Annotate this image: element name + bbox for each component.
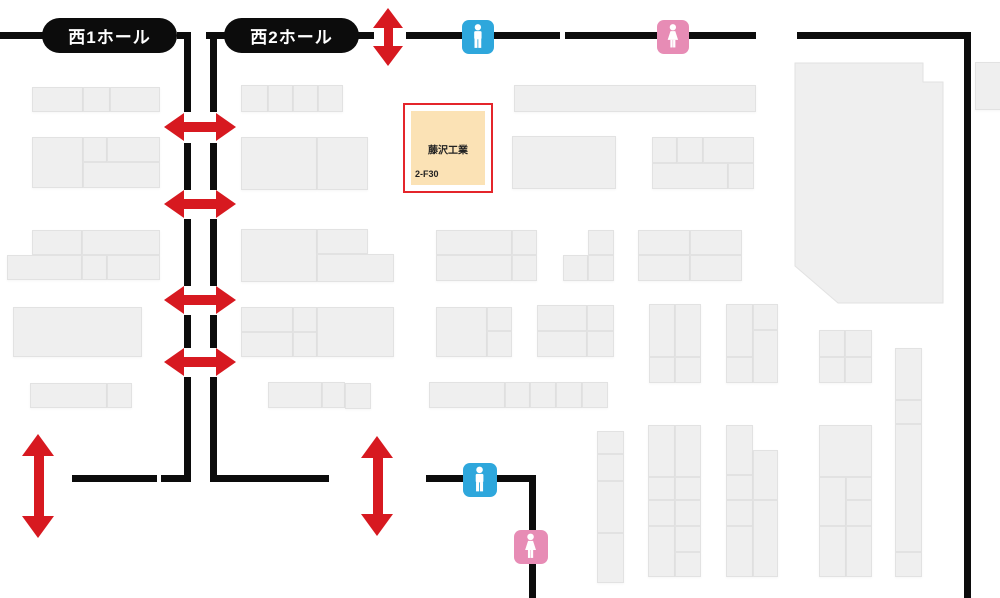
booth-cell — [597, 533, 624, 583]
booth-cell — [819, 477, 846, 526]
booth-cell — [487, 307, 512, 331]
two-way-arrow-icon — [361, 436, 394, 536]
booth-cell — [293, 332, 317, 357]
aisle-wall — [0, 32, 44, 39]
hall-label: 西1ホール — [42, 18, 177, 53]
booth-cell — [895, 400, 922, 424]
aisle-wall — [184, 32, 191, 112]
booth-cell — [32, 87, 83, 112]
booth-cell — [83, 137, 107, 162]
booth-cell — [241, 85, 268, 112]
arrow-shaft — [384, 24, 393, 50]
booth-cell — [846, 526, 872, 577]
hall-label-text: 西2ホール — [250, 23, 332, 48]
aisle-wall — [210, 143, 217, 190]
aisle-wall — [964, 32, 971, 598]
booth-cell — [512, 230, 537, 255]
booth-cell — [690, 230, 742, 255]
booth-cell — [530, 382, 556, 408]
booth-cell — [819, 425, 872, 477]
booth-cell — [726, 357, 753, 383]
booth-cell — [512, 255, 537, 281]
booth-cell — [753, 330, 778, 383]
booth-cell — [819, 357, 845, 383]
booth-cell — [597, 481, 624, 533]
booth-cell — [588, 255, 614, 281]
arrow-shaft — [180, 357, 220, 367]
booth-cell — [293, 85, 318, 112]
booth-cell — [648, 500, 675, 526]
booth-cell — [675, 304, 701, 357]
booth-cell — [322, 382, 345, 408]
booth-cell — [675, 500, 701, 526]
male-restroom-icon — [463, 463, 497, 497]
booth-cell — [556, 382, 582, 408]
booth-cell — [587, 331, 614, 357]
booth-cell — [677, 137, 703, 163]
booth-cell — [845, 330, 872, 357]
booth-cell — [895, 552, 922, 577]
aisle-wall — [210, 377, 217, 482]
two-way-arrow-icon — [164, 190, 236, 218]
booth-cell — [846, 500, 872, 526]
booth-cell — [690, 255, 742, 281]
highlighted-booth-inner: 藤沢工業 2-F30 — [411, 111, 485, 185]
booth-cell — [597, 454, 624, 481]
booth-cell — [675, 526, 701, 552]
booth-cell — [83, 87, 110, 112]
large-booth-block — [795, 63, 943, 303]
aisle-wall — [210, 32, 217, 112]
aisle-wall — [184, 219, 191, 286]
two-way-arrow-icon — [164, 348, 236, 376]
aisle-wall — [797, 32, 971, 39]
arrow-shaft — [180, 295, 220, 305]
booth-cell — [975, 62, 1000, 110]
female-restroom-icon — [657, 20, 689, 54]
two-way-arrow-icon — [164, 286, 236, 314]
booth-cell — [30, 383, 107, 408]
booth-cell — [107, 255, 160, 280]
booth-cell — [845, 357, 872, 383]
booth-number: 2-F30 — [415, 169, 439, 179]
aisle-wall — [184, 377, 191, 482]
booth-cell — [317, 229, 368, 254]
aisle-wall — [210, 315, 217, 348]
booth-cell — [436, 255, 512, 281]
booth-cell — [317, 137, 368, 190]
aisle-wall — [72, 475, 157, 482]
booth-cell — [317, 254, 394, 282]
booth-cell — [32, 137, 83, 188]
booth-cell — [675, 425, 701, 477]
booth-cell — [649, 304, 675, 357]
male-restroom-icon — [462, 20, 494, 54]
booth-cell — [241, 137, 317, 190]
aisle-wall — [184, 315, 191, 348]
booth-cell — [7, 255, 82, 280]
booth-cell — [512, 136, 616, 189]
two-way-arrow-icon — [164, 113, 236, 141]
arrow-shaft — [373, 454, 383, 518]
booth-cell — [638, 255, 690, 281]
booth-cell — [82, 230, 160, 255]
booth-cell — [652, 163, 728, 189]
booth-cell — [436, 307, 487, 357]
two-way-arrow-icon — [22, 434, 55, 538]
booth-cell — [649, 357, 675, 383]
highlighted-booth[interactable]: 藤沢工業 2-F30 — [403, 103, 493, 193]
arrow-shaft — [180, 199, 220, 209]
booth-cell — [675, 552, 701, 577]
arrow-shaft — [180, 122, 220, 132]
booth-cell — [726, 425, 753, 475]
booth-cell — [83, 162, 160, 188]
booth-cell — [537, 305, 587, 331]
booth-cell — [268, 382, 322, 408]
booth-cell — [317, 307, 394, 357]
booth-cell — [652, 137, 677, 163]
booth-cell — [753, 304, 778, 330]
booth-cell — [753, 450, 778, 500]
booth-cell — [728, 163, 754, 189]
exhibitor-name: 藤沢工業 — [428, 142, 468, 157]
booth-cell — [537, 331, 587, 357]
booth-cell — [638, 230, 690, 255]
two-way-arrow-icon — [373, 8, 403, 66]
booth-cell — [582, 382, 608, 408]
booth-cell — [819, 330, 845, 357]
booth-cell — [753, 500, 778, 577]
arrow-shaft — [34, 452, 44, 520]
booth-cell — [895, 424, 922, 552]
aisle-wall — [210, 219, 217, 286]
booth-cell — [587, 305, 614, 331]
booth-cell — [241, 307, 293, 332]
booth-cell — [726, 475, 753, 500]
booth-cell — [726, 526, 753, 577]
booth-cell — [241, 229, 317, 282]
booth-cell — [32, 230, 82, 255]
aisle-wall — [358, 32, 374, 39]
booth-cell — [436, 230, 512, 255]
aisle-wall — [184, 143, 191, 190]
booth-cell — [846, 477, 872, 500]
booth-cell — [563, 255, 588, 281]
booth-cell — [13, 307, 142, 357]
booth-cell — [703, 137, 754, 163]
booth-cell — [241, 332, 293, 357]
booth-cell — [588, 230, 614, 255]
hall-label-text: 西1ホール — [68, 23, 150, 48]
booth-cell — [648, 477, 675, 500]
booth-cell — [726, 500, 753, 526]
booth-cell — [726, 304, 753, 357]
booth-cell — [107, 137, 160, 162]
booth-cell — [597, 431, 624, 454]
booth-cell — [487, 331, 512, 357]
booth-cell — [110, 87, 160, 112]
booth-cell — [268, 85, 293, 112]
booth-cell — [675, 477, 701, 500]
booth-cell — [648, 425, 675, 477]
booth-cell — [505, 382, 530, 408]
exhibition-floor-map: 西1ホール西2ホール 藤沢工業 2-F30 — [0, 0, 1000, 598]
female-restroom-icon — [514, 530, 548, 564]
booth-cell — [429, 382, 505, 408]
booth-cell — [675, 357, 701, 383]
aisle-wall — [161, 475, 191, 482]
booth-cell — [895, 348, 922, 400]
booth-cell — [648, 526, 675, 577]
hall-label: 西2ホール — [224, 18, 359, 53]
booth-cell — [82, 255, 107, 280]
booth-cell — [107, 383, 132, 408]
booth-cell — [345, 383, 371, 409]
aisle-wall — [210, 475, 329, 482]
booth-cell — [318, 85, 343, 112]
booth-cell — [514, 85, 756, 112]
booth-cell — [293, 307, 317, 332]
booth-cell — [819, 526, 846, 577]
